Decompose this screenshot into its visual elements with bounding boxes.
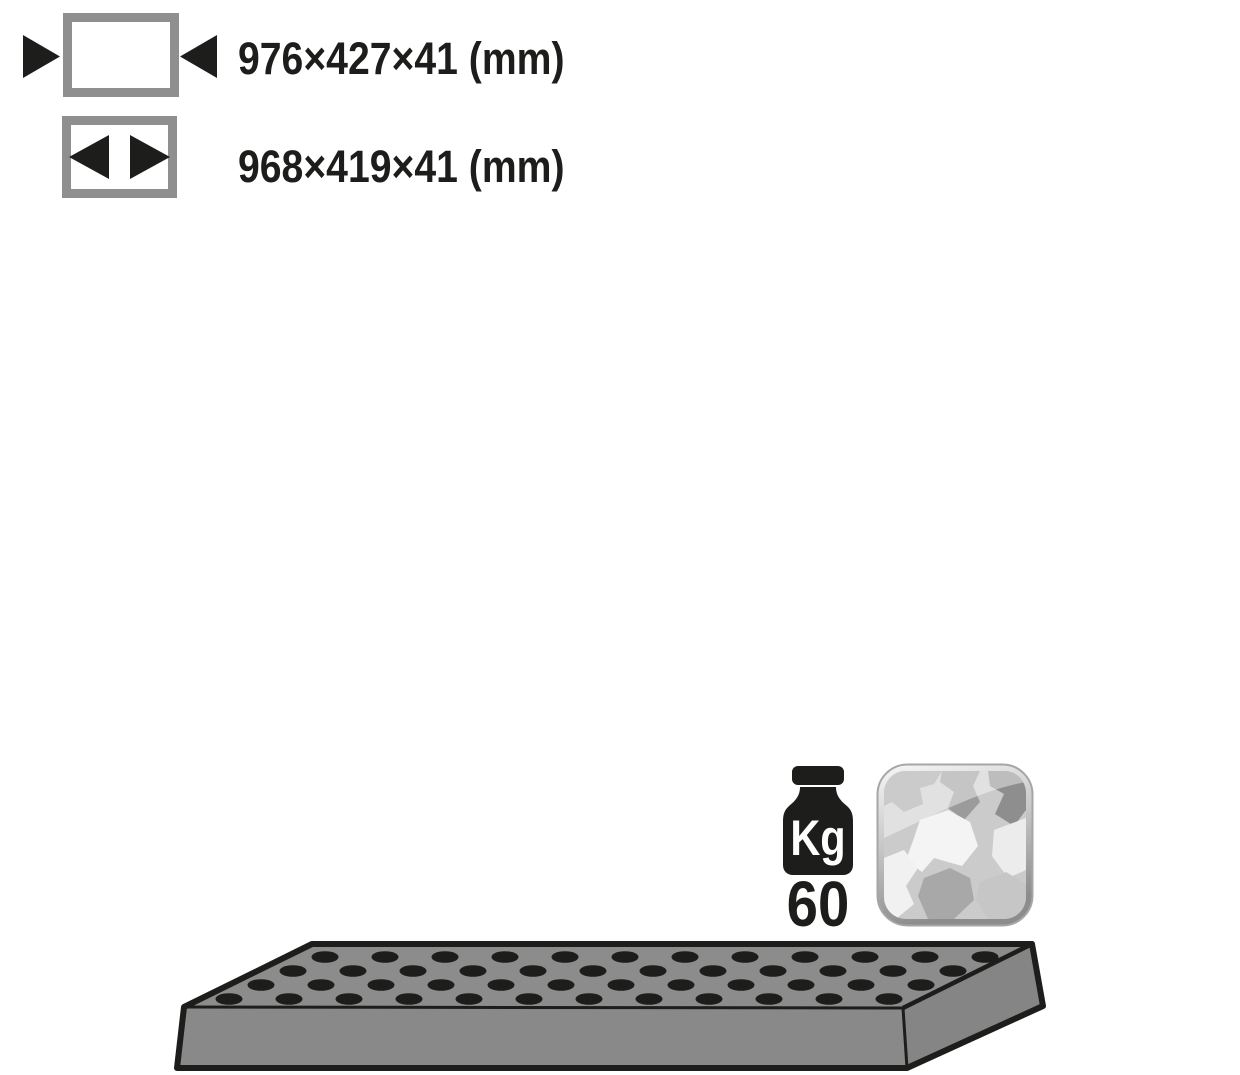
shelf-perforation-hole <box>672 951 699 963</box>
shelf-perforation-hole <box>312 951 339 963</box>
shelf-perforation-hole <box>880 965 907 977</box>
dimension-box <box>68 18 175 93</box>
inner-dimensions-value: 968×419×41 (mm) <box>238 144 564 189</box>
shelf-top-face <box>184 944 1032 1008</box>
shelf-perforation-hole <box>492 951 519 963</box>
product-spec-illustration: 976×427×41 (mm) 968×419×41 (mm) Kg 60 <box>0 0 1240 1075</box>
shelf-perforation-hole <box>488 979 515 991</box>
shelf-perforation-hole <box>636 993 663 1005</box>
shelf-perforation-hole <box>396 993 423 1005</box>
shelf-perforation-hole <box>548 979 575 991</box>
max-load-unit: Kg <box>785 813 851 863</box>
shelf-perforation-hole <box>428 979 455 991</box>
shelf-perforation-hole <box>576 993 603 1005</box>
shelf-perforation-hole <box>940 965 967 977</box>
max-load-value: 60 <box>783 872 853 936</box>
perforated-shelf-illustration <box>165 928 1055 1075</box>
shelf-perforation-hole <box>608 979 635 991</box>
arrow-right-icon <box>23 35 60 78</box>
shelf-perforation-hole <box>908 979 935 991</box>
shelf-perforation-hole <box>912 951 939 963</box>
shelf-perforation-hole <box>668 979 695 991</box>
shelf-perforation-hole <box>372 951 399 963</box>
shelf-perforation-hole <box>432 951 459 963</box>
shelf-perforation-hole <box>760 965 787 977</box>
shelf-perforation-hole <box>816 993 843 1005</box>
shelf-perforation-hole <box>696 993 723 1005</box>
shelf-perforation-hole <box>308 979 335 991</box>
shelf-perforation-hole <box>820 965 847 977</box>
shelf-perforation-hole <box>876 993 903 1005</box>
outer-dimensions-icon <box>22 13 218 99</box>
weight-knob <box>792 766 844 785</box>
shelf-perforation-hole <box>732 951 759 963</box>
shelf-perforation-hole <box>700 965 727 977</box>
steel-texture-pattern <box>884 771 1026 919</box>
max-load-badge: Kg 60 <box>778 763 858 933</box>
shelf-perforation-hole <box>516 993 543 1005</box>
shelf-perforation-hole <box>728 979 755 991</box>
shelf-perforation-hole <box>368 979 395 991</box>
shelf-perforation-hole <box>248 979 275 991</box>
shelf-perforation-hole <box>792 951 819 963</box>
shelf-perforation-hole <box>788 979 815 991</box>
galvanized-steel-texture-icon <box>876 762 1034 928</box>
shelf-perforation-hole <box>848 979 875 991</box>
shelf-perforation-hole <box>280 965 307 977</box>
shelf-front-top-edge <box>184 1007 903 1008</box>
shelf-perforation-hole <box>456 993 483 1005</box>
shelf-perforation-hole <box>580 965 607 977</box>
shelf-perforation-hole <box>612 951 639 963</box>
shelf-perforation-hole <box>400 965 427 977</box>
outer-dimensions-value: 976×427×41 (mm) <box>238 36 564 81</box>
arrow-left-icon <box>180 35 217 78</box>
shelf-perforation-hole <box>460 965 487 977</box>
shelf-perforation-hole <box>340 965 367 977</box>
shelf-perforation-hole <box>552 951 579 963</box>
shelf-perforation-hole <box>216 993 243 1005</box>
shelf-front-face <box>177 1007 907 1068</box>
shelf-perforation-hole <box>276 993 303 1005</box>
shelf-perforation-hole <box>852 951 879 963</box>
shelf-perforation-hole <box>520 965 547 977</box>
shelf-perforation-hole <box>640 965 667 977</box>
shelf-perforation-hole <box>336 993 363 1005</box>
shelf-perforation-hole <box>756 993 783 1005</box>
inner-dimensions-icon <box>62 116 177 198</box>
